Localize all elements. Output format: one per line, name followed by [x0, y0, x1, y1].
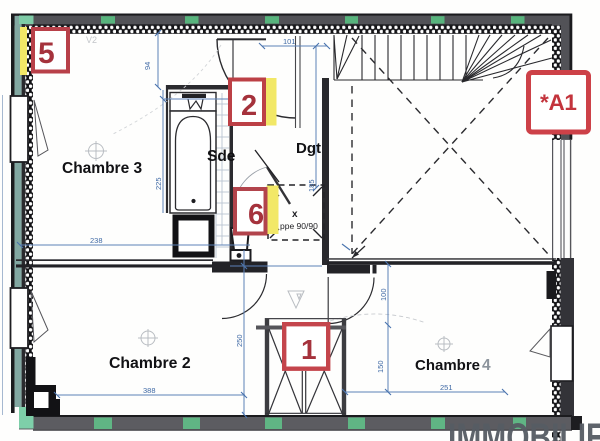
svg-text:1: 1 [301, 334, 317, 365]
svg-text:Sde: Sde [207, 148, 236, 165]
svg-text:94: 94 [143, 62, 152, 70]
svg-text:*A1: *A1 [540, 90, 577, 115]
svg-text:185: 185 [307, 179, 316, 192]
svg-text:Chambre 2: Chambre 2 [109, 355, 191, 372]
svg-text:ppe 90/90: ppe 90/90 [280, 221, 318, 231]
svg-text:4: 4 [482, 357, 491, 374]
svg-text:250: 250 [235, 334, 244, 347]
svg-text:150: 150 [376, 360, 385, 373]
svg-text:Chambre 3: Chambre 3 [62, 160, 142, 177]
svg-text:IMMOBILIE: IMMOBILIE [448, 416, 600, 441]
svg-text:6: 6 [248, 199, 264, 231]
svg-text:V2: V2 [86, 35, 97, 45]
svg-text:101: 101 [283, 37, 296, 46]
svg-text:100: 100 [379, 288, 388, 301]
svg-text:251: 251 [440, 383, 453, 392]
svg-text:Chambre: Chambre [415, 357, 480, 374]
svg-text:225: 225 [154, 177, 163, 190]
svg-text:x: x [292, 209, 298, 220]
svg-text:Dgt: Dgt [296, 140, 321, 157]
svg-text:238: 238 [90, 236, 103, 245]
svg-text:5: 5 [38, 37, 55, 70]
svg-text:388: 388 [143, 386, 156, 395]
svg-text:2: 2 [241, 90, 257, 122]
